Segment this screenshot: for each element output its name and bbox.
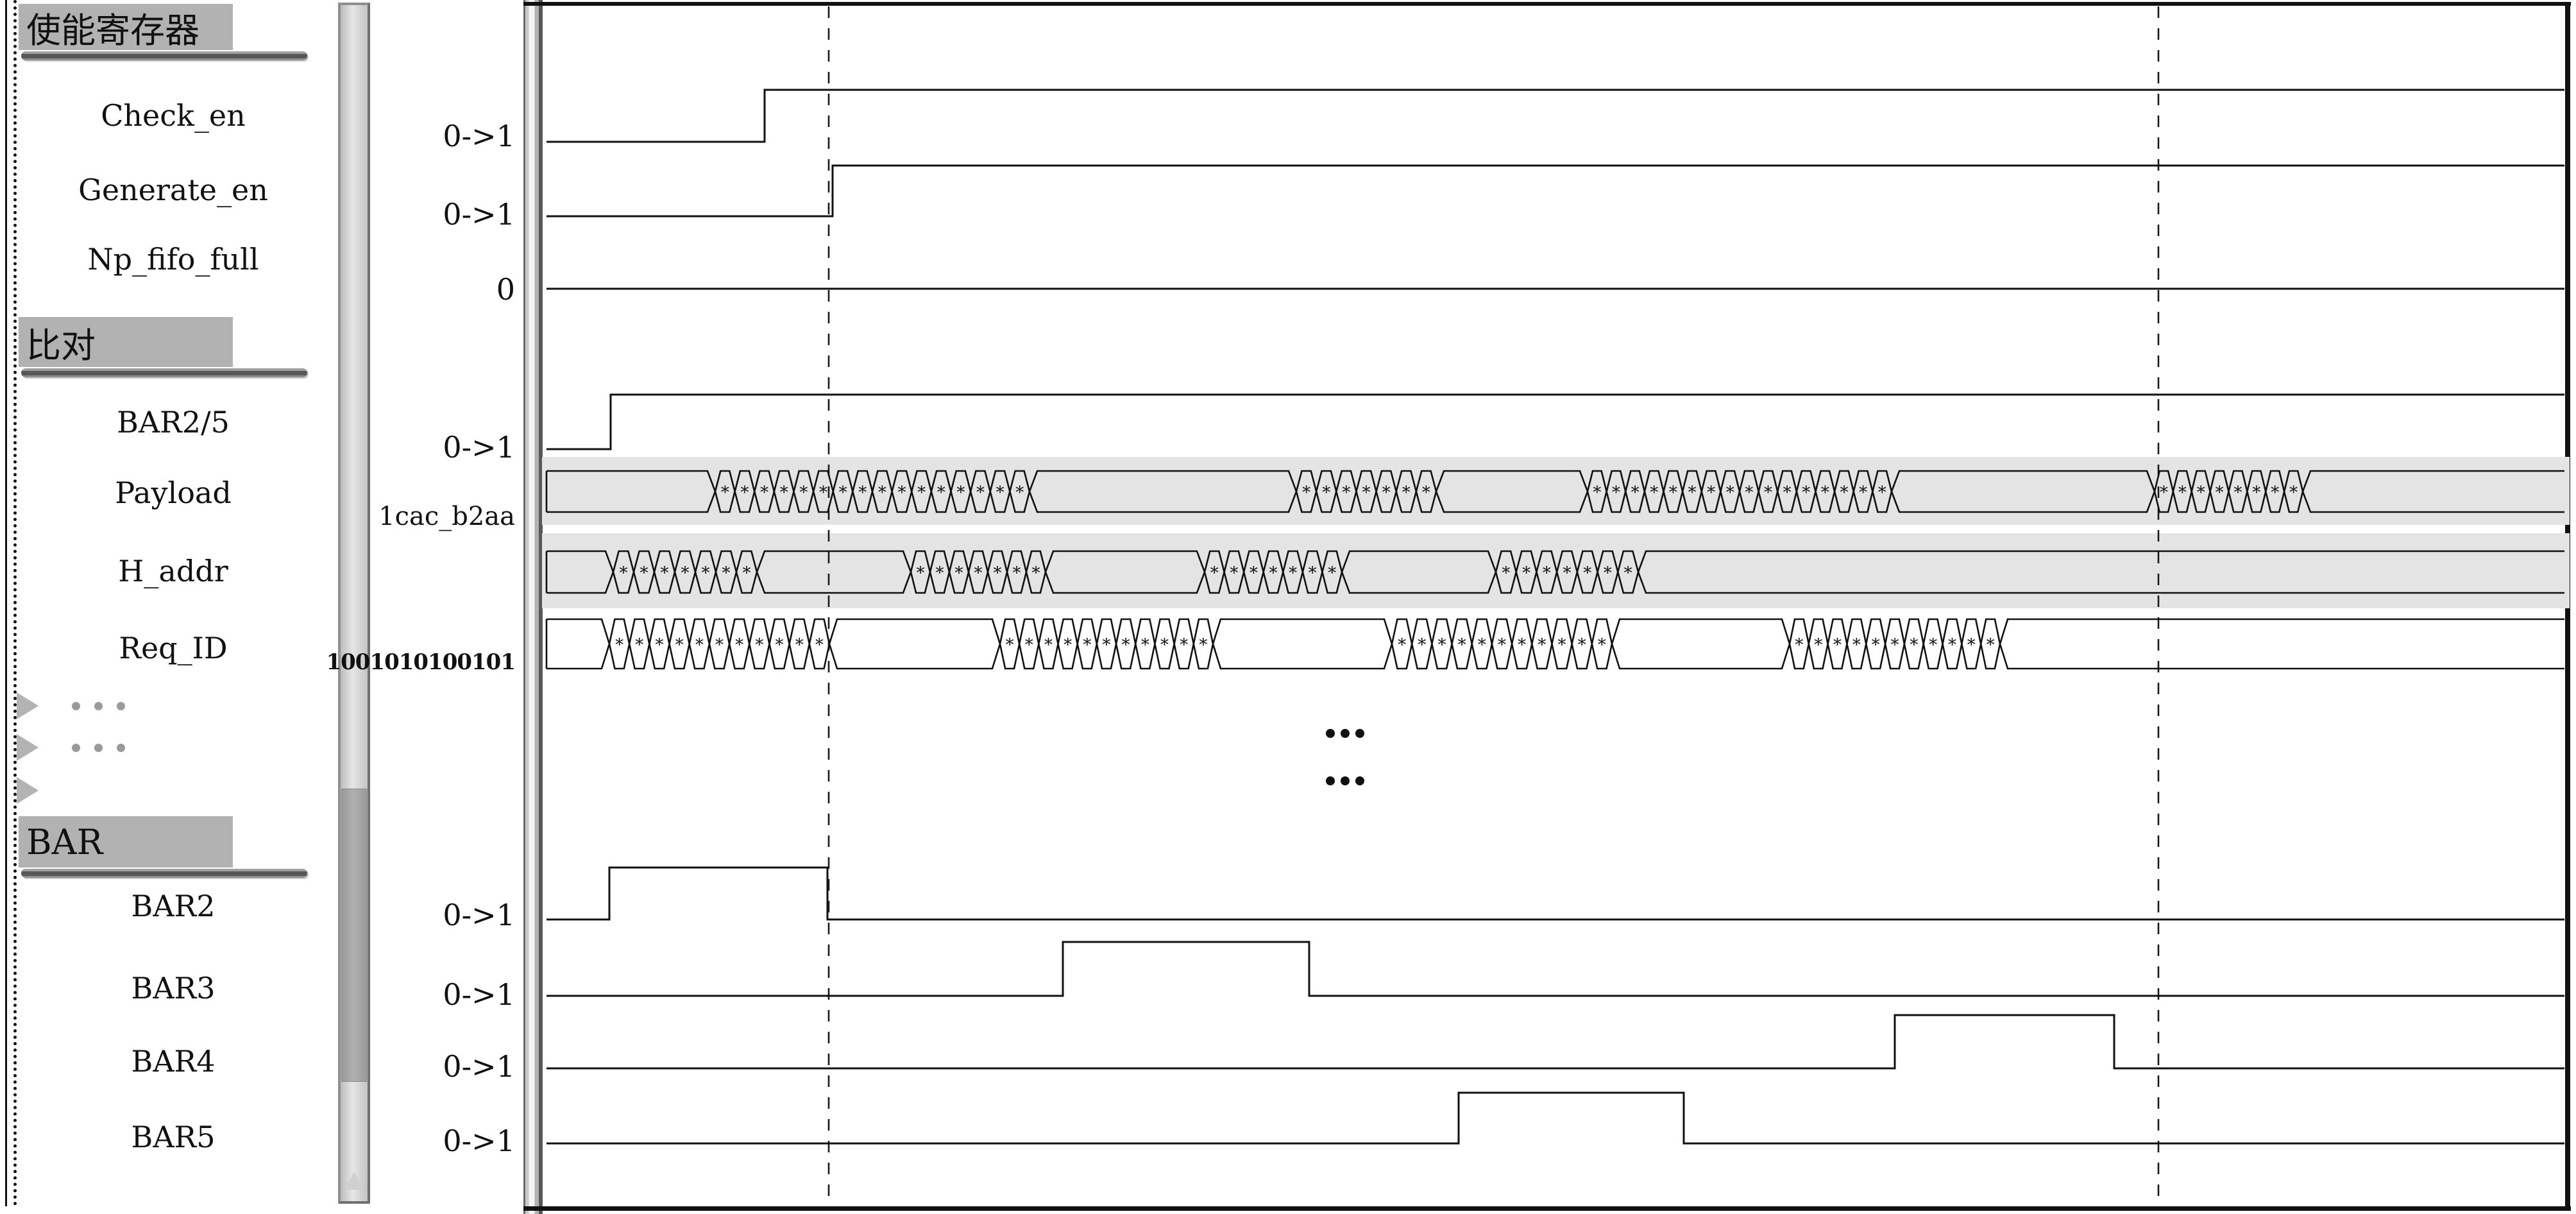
group-underline — [21, 368, 307, 377]
group-underline — [21, 51, 307, 60]
collapsed-group-row[interactable] — [17, 692, 125, 719]
signal-value: 0->1 — [443, 119, 515, 153]
sidebar-item-bar2-5[interactable]: BAR2/5 — [26, 405, 321, 440]
expand-triangle-icon[interactable] — [17, 734, 38, 761]
group-header-label: 比对 — [26, 317, 96, 368]
group-header-g0[interactable]: 使能寄存器 — [19, 4, 233, 50]
collapsed-group-row[interactable] — [17, 777, 38, 804]
collapsed-ellipsis — [72, 744, 125, 752]
signal-value: 0->1 — [443, 1049, 515, 1084]
wave-panel-right-border — [2565, 2, 2570, 1211]
group-underline — [21, 869, 307, 878]
sidebar-item-req-id[interactable]: Req_ID — [26, 631, 321, 665]
group-header-label: 使能寄存器 — [26, 2, 199, 53]
scroll-up-arrow-icon[interactable] — [345, 1172, 363, 1190]
sidebar-item-bar3[interactable]: BAR3 — [26, 971, 321, 1005]
signal-value: 0->1 — [443, 898, 515, 932]
collapsed-ellipsis — [72, 702, 125, 710]
signal-value: 0->1 — [443, 1124, 515, 1158]
sidebar-item-check-en[interactable]: Check_en — [26, 98, 321, 133]
signal-value: 0 — [496, 272, 515, 307]
wave-panel-bottom-border — [523, 1206, 2571, 1211]
collapsed-group-row[interactable] — [17, 734, 125, 761]
sidebar-item-generate-en[interactable]: Generate_en — [26, 173, 321, 207]
group-header-label: BAR — [26, 822, 103, 862]
sidebar-item-np-fifo-full[interactable]: Np_fifo_full — [26, 242, 321, 277]
sidebar-item-h-addr[interactable]: H_addr — [26, 554, 321, 588]
scrollbar-thumb[interactable] — [341, 789, 368, 1082]
sidebar-item-payload[interactable]: Payload — [26, 475, 321, 510]
signal-value: 0->1 — [443, 197, 515, 232]
signal-value: 1001010100101 — [326, 649, 515, 675]
waveform-canvas[interactable] — [543, 6, 2565, 1206]
signal-value: 1cac_b2aa — [378, 502, 515, 531]
sidebar-item-bar2[interactable]: BAR2 — [26, 889, 321, 923]
expand-triangle-icon[interactable] — [17, 777, 38, 804]
signal-value: 0->1 — [443, 430, 515, 465]
signal-value: 0->1 — [443, 977, 515, 1012]
sidebar-dotted-border — [13, 0, 17, 1206]
waveform-viewer-window: 使能寄存器比对BARCheck_enGenerate_enNp_fifo_ful… — [0, 0, 2576, 1214]
sidebar-item-bar5[interactable]: BAR5 — [26, 1120, 321, 1154]
vertical-scrollbar[interactable] — [338, 3, 370, 1204]
group-header-g1[interactable]: 比对 — [19, 317, 233, 367]
group-header-bar[interactable]: BAR — [19, 816, 233, 868]
signal-sidebar: 使能寄存器比对BARCheck_enGenerate_enNp_fifo_ful… — [0, 0, 334, 1214]
expand-triangle-icon[interactable] — [17, 692, 38, 719]
sidebar-item-bar4[interactable]: BAR4 — [26, 1044, 321, 1079]
wave-panel-left-divider[interactable] — [523, 0, 543, 1214]
sidebar-left-border — [5, 0, 7, 1206]
